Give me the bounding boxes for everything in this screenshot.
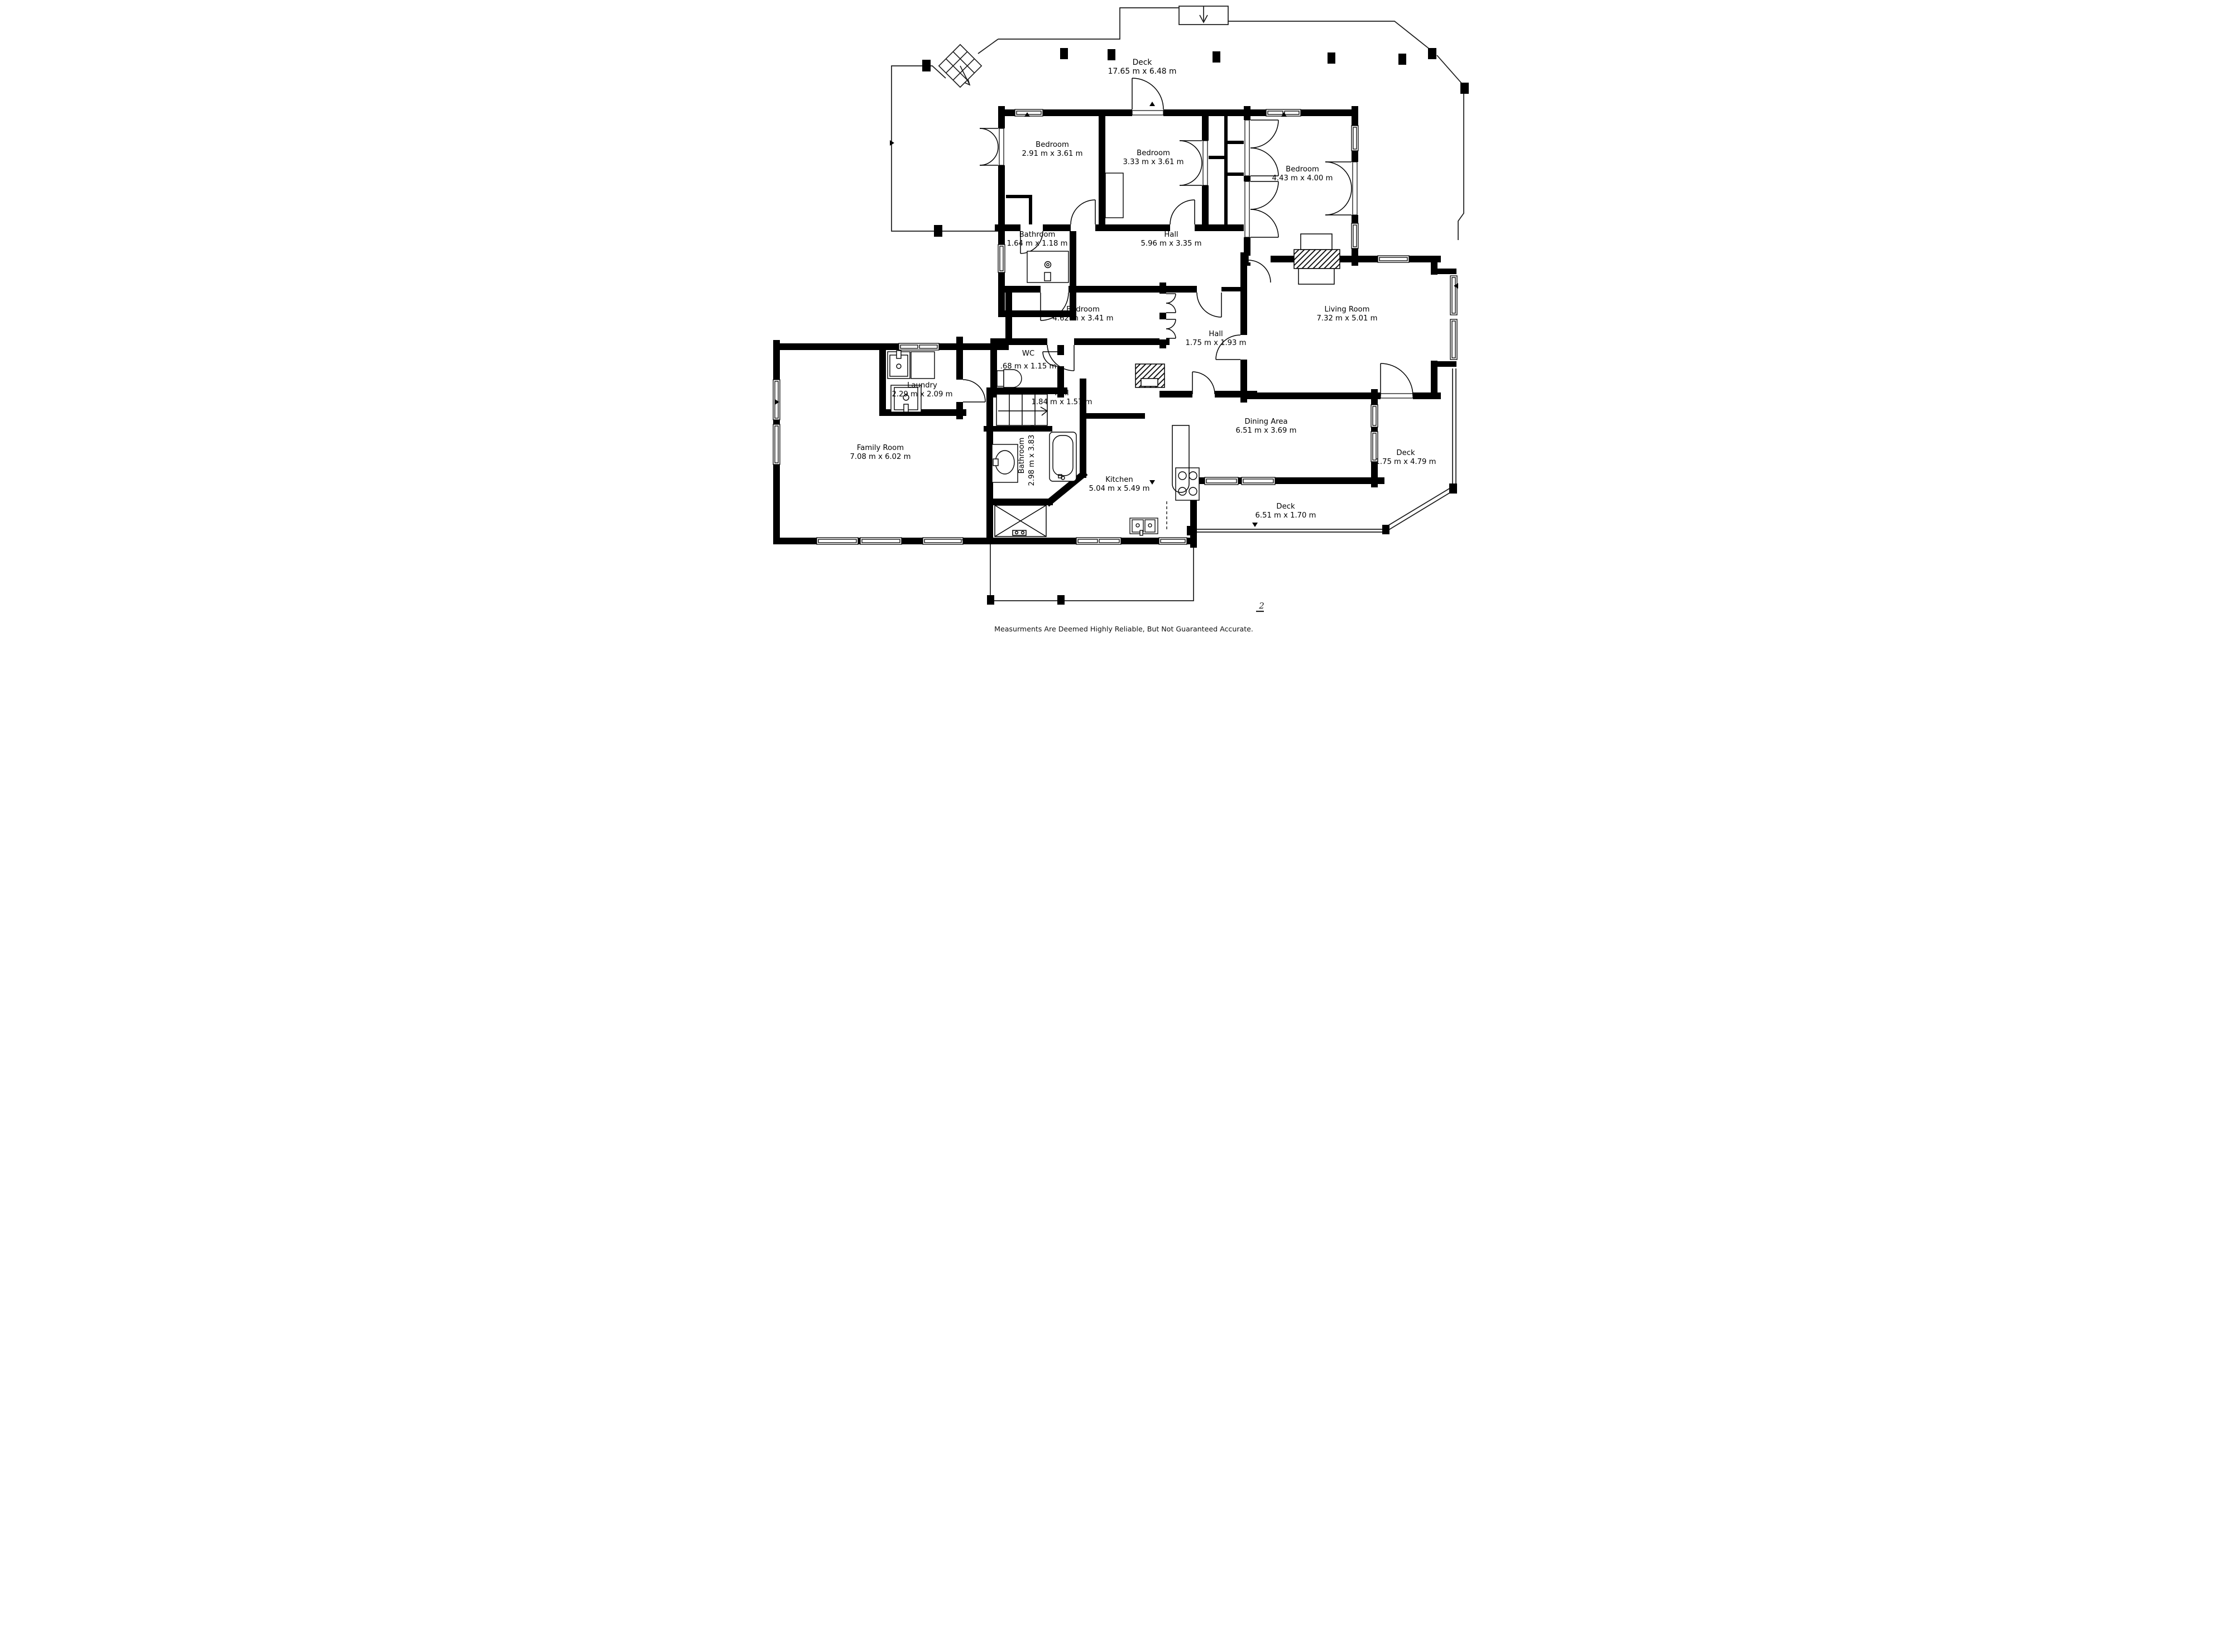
fireplace-entry	[1135, 364, 1165, 387]
room-dims-deck-bottom: 6.51 m x 1.70 m	[1255, 511, 1316, 520]
room-label-bedroom-3: Bedroom	[1286, 165, 1319, 174]
door-bed1	[1071, 200, 1095, 231]
window-bathroom1-left	[998, 245, 1005, 272]
door-laundry	[956, 380, 985, 402]
room-label-deck-right: Deck	[1396, 449, 1415, 457]
room-label-bathroom-1: Bathroom	[1019, 231, 1055, 239]
room-dims-hall-3: 1.84 m x 1.57 m	[1031, 398, 1092, 406]
window-living-bay-lower	[1450, 319, 1457, 360]
toilet-wc	[997, 370, 1022, 387]
room-dims-family-room: 7.08 m x 6.02 m	[850, 453, 911, 461]
room-label-bedroom-2: Bedroom	[1137, 149, 1170, 157]
door-bed1-french	[980, 128, 1005, 165]
door-hall2	[1197, 286, 1221, 317]
room-label-bedroom-4: Bedroom	[1066, 305, 1100, 314]
room-label-family-room: Family Room	[856, 444, 903, 452]
room-dims-deck-right: 1.75 m x 4.79 m	[1375, 458, 1436, 466]
page-mark: 2	[1258, 601, 1264, 611]
door-bathroom1	[1020, 224, 1043, 253]
window-family-left-lower	[773, 424, 780, 465]
room-dims-bedroom-4: 4.62 m x 3.41 m	[1052, 314, 1113, 323]
window-kitchen-bottom-2	[1159, 538, 1187, 544]
stove	[1176, 468, 1199, 500]
window-dining-bottom-2	[1242, 477, 1275, 485]
room-dims-deck-top: 17.65 m x 6.48 m	[1108, 67, 1176, 76]
door-bed2-french	[1180, 141, 1209, 185]
window-family-left-upper	[773, 380, 780, 420]
door-hall2-bottom	[1192, 372, 1215, 398]
disclaimer-text: Measurments Are Deemed Highly Reliable, …	[994, 625, 1253, 633]
deck-outline	[892, 8, 1464, 601]
bed2-closet	[1105, 173, 1123, 218]
room-dims-hall-2: 1.75 m x 1.93 m	[1185, 339, 1246, 347]
window-dining-bottom-1	[1205, 477, 1238, 485]
room-label-laundry: Laundry	[907, 381, 937, 390]
door-living-deck	[1381, 363, 1413, 399]
door-deck	[1132, 78, 1163, 116]
room-dims-bathroom-1: 1.64 m x 1.18 m	[1007, 240, 1067, 248]
floorplan-page: Deck 17.65 m x 6.48 m Bedroom 2.91 m x 3…	[686, 0, 1548, 639]
room-label-kitchen: Kitchen	[1105, 476, 1133, 484]
room-dims-bathroom-2: 2.98 m x 3.83 m	[1028, 425, 1036, 486]
window-bed3-right-lower	[1352, 223, 1358, 248]
floorplan-svg: Deck 17.65 m x 6.48 m Bedroom 2.91 m x 3…	[686, 0, 1548, 639]
room-dims-hall-main: 5.96 m x 3.35 m	[1141, 240, 1201, 248]
room-label-deck-top: Deck	[1132, 58, 1152, 67]
closet-walls	[1006, 116, 1245, 224]
room-dims-laundry: 2.29 m x 2.09 m	[892, 390, 952, 399]
room-label-deck-bottom: Deck	[1276, 502, 1295, 511]
room-label-living-room: Living Room	[1324, 305, 1369, 314]
room-label-bedroom-1: Bedroom	[1036, 141, 1069, 149]
room-label-wc: WC	[1022, 349, 1034, 358]
door-bed3	[1248, 256, 1271, 282]
window-family-bottom-2	[860, 538, 902, 544]
door-bed2	[1170, 200, 1195, 231]
room-dims-living-room: 7.32 m x 5.01 m	[1316, 314, 1377, 323]
room-dims-kitchen: 5.04 m x 5.49 m	[1089, 485, 1149, 493]
shower-bathroom1	[1027, 251, 1068, 282]
window-living-bay-upper	[1450, 276, 1457, 315]
door-bed3-closet-lower	[1244, 181, 1278, 237]
shower-xbox	[995, 505, 1046, 537]
window-dining-right-lower	[1371, 432, 1378, 462]
room-label-dining-area: Dining Area	[1244, 418, 1287, 426]
room-dims-wc: .68 m x 1.15 m	[1000, 362, 1056, 371]
kitchen-sink	[1130, 518, 1158, 535]
window-family-bottom-1	[817, 538, 858, 544]
room-label-hall-main: Hall	[1164, 231, 1178, 239]
door-bed3-closet-upper	[1244, 120, 1278, 176]
window-family-bottom-3	[923, 538, 963, 544]
room-dims-dining-area: 6.51 m x 3.69 m	[1235, 427, 1296, 435]
window-bed3-right-upper	[1352, 126, 1358, 151]
deck-stairs-top	[1179, 6, 1228, 25]
room-label-bathroom-2: Bathroom	[1018, 438, 1026, 474]
room-label-hall-3: Hall	[1055, 389, 1068, 398]
room-dims-bedroom-2: 3.33 m x 3.61 m	[1123, 158, 1183, 166]
deck-stair-hatch	[938, 45, 981, 87]
window-dining-right-upper	[1371, 405, 1378, 427]
window-laundry-top	[899, 343, 939, 350]
window-kitchen-bottom-1	[1076, 538, 1121, 544]
room-label-hall-2: Hall	[1209, 330, 1223, 338]
room-dims-bedroom-3: 4.43 m x 4.00 m	[1272, 174, 1333, 183]
annotations: 2 Measurments Are Deemed Highly Reliable…	[994, 601, 1264, 633]
room-dims-bedroom-1: 2.91 m x 3.61 m	[1022, 150, 1082, 158]
door-bed3-french	[1325, 162, 1358, 215]
fireplace-living	[1294, 234, 1340, 284]
window-living-top	[1378, 256, 1409, 262]
